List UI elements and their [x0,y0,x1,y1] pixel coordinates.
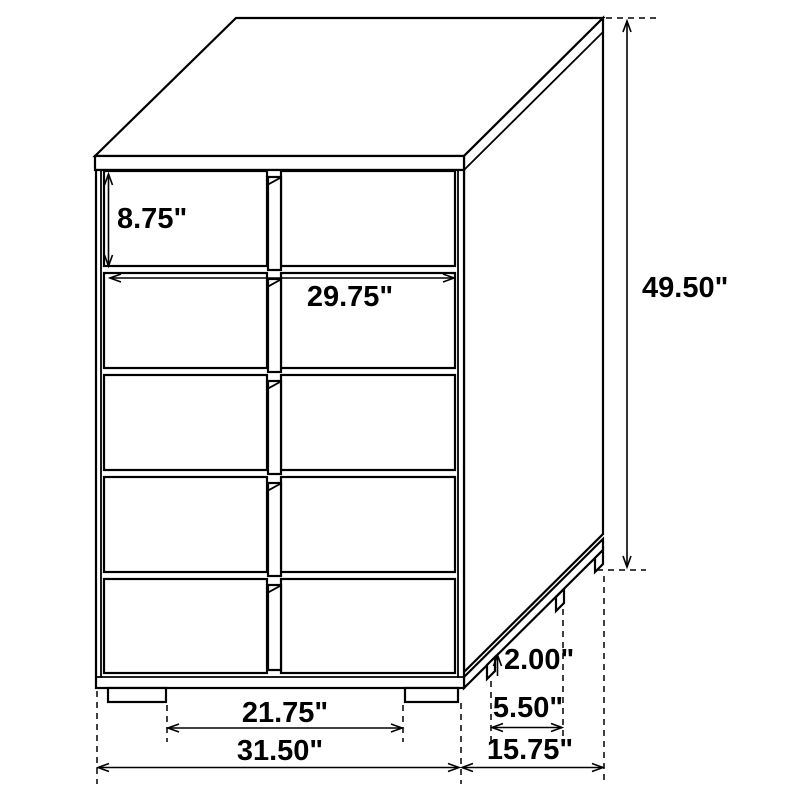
drawer-handle-row5 [268,585,281,670]
dim-label-drawer-height: 8.75" [117,203,187,235]
drawer-handle-row1 [268,177,281,270]
dim-label-overall-width: 31.50" [237,735,323,767]
front-left-foot [108,688,166,702]
drawer-handle-row3 [268,381,281,474]
drawer-front-row5-right [281,579,455,673]
drawer-front-row5-left [104,579,267,673]
dim-label-foot-height: 2.00" [504,644,574,676]
furniture-dimension-diagram: 8.75" 29.75" 49.50" 2.00" 5.50" [0,0,800,800]
dim-label-front-feet-spacing: 21.75" [242,697,328,729]
drawer-front-row4-left [104,477,267,572]
drawer-front-row3-right [281,375,455,470]
dim-label-overall-height: 49.50" [642,272,728,304]
front-right-foot [405,688,458,702]
drawer-front-row4-right [281,477,455,572]
drawer-handles [268,177,281,670]
drawer-front-row2-left [104,273,267,368]
dim-foot-height: 2.00" [498,644,575,676]
chest-dimension-drawing: 8.75" 29.75" 49.50" 2.00" 5.50" [0,0,800,800]
drawer-front-row3-left [104,375,267,470]
front-top-slab [95,156,464,170]
dim-label-overall-depth: 15.75" [487,734,573,766]
drawer-front-row1-right [281,171,455,266]
dim-overall-height: 49.50" [597,18,728,570]
dim-label-side-feet-spacing: 5.50" [493,692,563,724]
chest-body [95,18,603,702]
dim-label-drawer-width: 29.75" [307,281,393,313]
drawer-handle-row2 [268,279,281,372]
drawer-handle-row4 [268,483,281,576]
